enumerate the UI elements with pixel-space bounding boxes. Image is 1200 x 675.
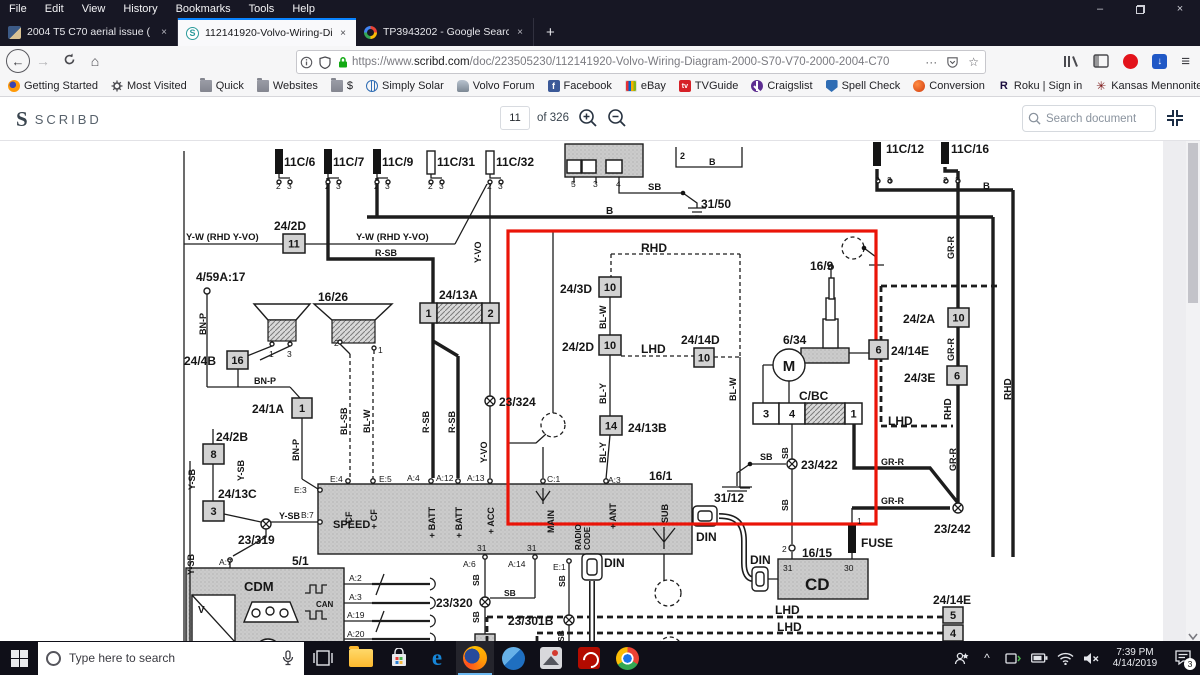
microsoft-store-button[interactable] [380,641,418,675]
tab-bar: 2004 T5 C70 aerial issue ( not t × S 112… [0,18,1200,46]
menu-help[interactable]: Help [283,3,324,15]
diagram-label: C/BC [799,389,829,403]
diagram-label: RHD [943,398,954,420]
diagram-label: FUSE [861,536,893,550]
acrobat-button[interactable] [570,641,608,675]
junction-23-301B [564,615,574,625]
diagram-label: 23/324 [499,395,536,409]
start-button[interactable] [0,641,38,675]
diagram-pin-number: 6 [875,345,881,357]
dashed-component-circle [655,580,681,606]
diagram-label: 4/59A:17 [196,270,246,284]
diagram-pin-number: 16 [231,355,243,367]
diagram-label: 11C/32 [496,155,534,169]
diagram-label: 11C/16 [951,142,989,156]
diagram-label: B [709,157,716,167]
diagram-label: 31/50 [701,197,731,211]
menu-history[interactable]: History [114,3,166,15]
desktop: File Edit View History Bookmarks Tools H… [0,0,1200,675]
diagram-label: BL-Y [598,442,608,463]
forward-button[interactable]: → [30,53,56,69]
folder-icon [331,80,343,92]
bookmark-volvo-forum[interactable]: Volvo Forum [457,80,535,92]
diagram-label: A:3 [349,592,362,602]
diagram-label: 2 [782,544,787,554]
new-tab-button[interactable]: + [534,18,567,46]
tab-title: TP3943202 - Google Search [383,26,509,38]
back-button[interactable]: ← [6,49,30,73]
diagram-label: R-SB [447,411,457,433]
tab-scribd-active[interactable]: S 112141920-Volvo-Wiring-Diag × [178,18,356,46]
diagram-label: SB [471,574,481,586]
file-explorer-button[interactable] [342,641,380,675]
diagram-label: 16/26 [318,290,348,304]
diagram-label: 3 [955,175,960,185]
firefox-button-active[interactable] [456,641,494,675]
diagram-label: DIN [696,530,717,544]
diagram-pin-box [567,160,581,173]
diagram-label: 24/14E [933,593,971,607]
download-extension-icon[interactable]: ↓ [1152,54,1167,69]
bookmark-most-visited[interactable]: Most Visited [111,80,187,92]
diagram-label: Y-VO [473,241,483,263]
close-button[interactable]: × [1160,0,1200,18]
windows-logo-icon [11,650,28,667]
diagram-label: Y-SB [187,468,197,490]
bookmarks-toolbar: Getting Started Most Visited Quick Websi… [0,76,1200,97]
diagram-label: Y-VO [479,441,489,463]
wire-break [430,578,435,641]
document-search-input[interactable]: Search document [1022,105,1156,132]
diagram-label: + BATT [454,506,464,538]
edge-icon: e [432,645,442,671]
scrollbar-thumb[interactable] [1188,143,1198,303]
car-icon [457,80,469,92]
diagram-label: 1 [857,516,862,526]
diagram-label: E:5 [379,474,392,484]
diagram-label: E:3 [294,485,307,495]
home-button[interactable]: ⌂ [82,53,108,69]
windows-taskbar: Type here to search e [0,641,1200,675]
diagram-label: Y-SB [236,459,246,481]
diagram-label: 31 [783,563,793,573]
folder-icon [200,80,212,92]
diagram-label: 3 [385,181,390,191]
diagram-label: GR-R [881,496,904,506]
diagram-label: GR-R [881,457,904,467]
svg-text:V: V [198,605,205,616]
diagram-label: SUB [660,503,670,523]
navigation-toolbar: ← → ⌂ https://www.scribd.com/doc/2235052… [0,46,1200,77]
diagram-label: BL-W [362,409,372,433]
diagram-label: 23/301B [508,614,554,628]
tab-google-search[interactable]: TP3943202 - Google Search × [356,18,534,46]
diagram-label: 23/320 [436,596,473,610]
junction-23-242 [953,503,963,513]
volume-muted-tray-icon[interactable] [1078,641,1104,675]
wifi-tray-icon[interactable] [1052,641,1078,675]
dashed-component-circle [541,413,565,437]
bookmark-folder-dollar[interactable]: $ [331,80,353,92]
diagram-label: SB [648,182,661,193]
diagram-label: A:12 [436,473,454,483]
speaker-right [314,304,392,320]
diagram-label: GR-R [946,338,956,361]
bookmark-getting-started[interactable]: Getting Started [8,80,98,92]
diagram-label: GR-R [948,448,958,471]
menu-view[interactable]: View [73,3,115,15]
bookmark-spell-check[interactable]: Spell Check [826,80,901,92]
diagram-label: 16/1 [649,469,673,483]
diagram-label: 23/242 [934,522,971,536]
chrome-icon [616,647,639,670]
taskbar-search-input[interactable]: Type here to search [38,642,304,675]
diagram-label: LHD [888,414,913,428]
speaker-left [254,304,310,320]
facebook-icon: f [548,80,560,92]
task-view-icon [313,649,333,667]
diagram-label: Y-W (RHD Y-VO) [356,232,429,243]
diagram-label: 3 [287,181,292,191]
battery-tray-icon[interactable] [1026,641,1052,675]
scribd-logo-text: SCRIBD [35,112,102,127]
bookmark-simply-solar[interactable]: Simply Solar [366,80,444,92]
diagram-label: BN-P [254,376,276,386]
diagram-label: BL-W [598,305,608,329]
peace-icon [751,80,763,92]
diagram-label: RHD [1003,378,1014,400]
diagram-label: + ACC [486,507,496,534]
diagram-pin-number: 10 [952,313,964,325]
diagram-pin-number: 3 [763,409,769,421]
diagram-label: CAN [316,600,334,609]
diagram-pin-number: 10 [604,282,616,294]
diagram-label: 2 [487,181,492,191]
document-page[interactable]: V [0,141,1200,641]
notification-badge: 3 [1184,658,1196,670]
diagram-pin-number: 2 [487,308,493,320]
tab-title: 2004 T5 C70 aerial issue ( not t [27,26,153,38]
roku-icon: R [998,80,1010,92]
diagram-pin-box [582,160,596,173]
diagram-label: BL-W [728,377,738,401]
bookmark-facebook[interactable]: fFacebook [548,80,612,92]
diagram-label: RHD [641,241,667,255]
diagram-label: 11C/7 [333,155,365,169]
fuse-element [848,525,856,553]
diagram-label: R-SB [375,248,397,258]
diagram-label: SB [557,575,567,587]
reload-icon [63,53,76,66]
scribd-logo-glyph: S [16,107,28,132]
chrome-button[interactable] [608,641,646,675]
diagram-pin-box [606,160,622,173]
page-info-icon[interactable] [300,56,313,69]
diagram-label: 11C/6 [284,155,316,169]
diagram-label: A:19 [347,610,365,620]
diagram-label: BN-P [198,313,208,335]
diagram-label: B [606,206,613,217]
diagram-pin-number: 1 [425,308,431,320]
dashed-component-circle [842,237,864,259]
diagram-label: 24/2D [562,340,594,354]
wiring-diagram: V [0,141,1200,641]
reload-button[interactable] [56,53,82,69]
gear-icon [111,80,123,92]
url-bar[interactable]: https://www.scribd.com/doc/223505230/112… [296,50,986,74]
firefox-icon [463,646,487,670]
diagram-label: LHD [777,620,802,634]
diagram-label: A:6 [463,559,476,569]
diagram-label: 24/14E [891,344,929,358]
menu-bookmarks[interactable]: Bookmarks [167,3,240,15]
tab-close-icon[interactable]: × [338,28,348,39]
diagram-label: 2 [276,181,281,191]
diagram-label: 16/15 [802,546,832,560]
diagram-label: 24/13A [439,288,478,302]
diagram-label: Y-SB [279,511,301,521]
power-tray-icon[interactable] [1000,641,1026,675]
wire [372,584,430,639]
diagram-label: 31 [477,543,487,553]
diagram-pin-number: 4 [950,628,957,640]
window-title-bar: File Edit View History Bookmarks Tools H… [0,0,1200,18]
diagram-label: 3 [593,179,598,189]
diagram-label: 3 [887,175,892,185]
diagram-label: 2 [334,338,339,348]
app-menu-icon[interactable]: ≡ [1181,53,1190,70]
diagram-label: 5 [571,179,576,189]
diagram-label: 24/2D [274,219,306,233]
diagram-label: 16/9 [810,259,834,273]
diagram-label: SB [556,630,566,641]
burst-icon: ✳ [1095,80,1107,92]
diagram-label: DIN [750,553,771,567]
diagram-label: + CF [369,509,379,529]
image-viewer-button[interactable] [532,641,570,675]
bookmark-star-icon[interactable]: ☆ [962,55,985,69]
tracking-shield-icon[interactable] [319,56,331,69]
diagram-label: 24/2A [903,312,935,326]
edge-button[interactable]: e [418,641,456,675]
acrobat-icon [578,647,600,669]
junction-23-422 [787,459,797,469]
diagram-label: 31 [527,543,537,553]
tab-close-icon[interactable]: × [515,27,525,38]
dashed-wire [350,254,740,479]
diagram-label: A:7 [219,557,232,567]
diagram-label: A:14 [508,559,526,569]
connector-box [475,634,495,641]
bookmark-kansas-mennonite[interactable]: ✳Kansas Mennonite Reli... [1095,80,1200,92]
bookmark-craigslist[interactable]: Craigslist [751,80,812,92]
tab-title: 112141920-Volvo-Wiring-Diag [205,27,332,39]
diagram-label: 24/14D [681,333,720,347]
zoom-in-button[interactable] [578,108,598,128]
diagram-label: CDM [244,579,274,594]
diagram-label: 24/3D [560,282,592,296]
restore-icon [1136,5,1145,14]
microphone-icon[interactable] [282,650,294,666]
diagram-label: A:2 [349,573,362,583]
diagram-label: 6/34 [783,333,807,347]
diagram-label: 3 [336,181,341,191]
junction-23-324 [485,396,495,406]
folder-icon [257,80,269,92]
diagram-label: 2 [374,181,379,191]
bookmark-roku[interactable]: RRoku | Sign in [998,80,1082,92]
diagram-pin-number: 4 [789,409,796,421]
thunderbird-button[interactable] [494,641,532,675]
diagram-label: Y-W (RHD Y-VO) [186,232,259,243]
diagram-pin-number: 8 [210,449,216,461]
exit-fullscreen-button[interactable] [1166,109,1184,127]
diagram-label: CODE [583,526,592,550]
antenna-motor-housing [801,348,849,363]
menu-file[interactable]: File [0,3,36,15]
diagram-label: BL-SB [339,407,349,435]
pocket-icon[interactable] [946,56,959,69]
diagram-label: 24/1A [252,402,284,416]
diagram-pin-number: 10 [604,340,616,352]
diagram-label: LHD [775,603,800,617]
diagram-label: SB [504,588,516,598]
cortana-icon [46,651,61,666]
zoom-out-button[interactable] [607,108,627,128]
diagram-label: RADIO [574,524,583,550]
diagram-pin-box [437,303,482,323]
bookmark-ebay[interactable]: eBay [625,80,666,92]
diagram-label: E:1 [553,562,566,572]
page-total-label: of 326 [537,112,569,124]
people-tray-icon[interactable] [948,641,974,675]
diagram-label: BN-P [291,439,301,461]
system-tray: ^ 7:39 PM 4/14/2019 3 [948,641,1200,675]
action-center-button[interactable]: 3 [1166,641,1200,675]
diagram-label: MAIN [546,510,556,533]
diagram-pin-number: 6 [954,371,960,383]
menu-tools[interactable]: Tools [240,3,284,15]
search-icon [1028,112,1041,125]
tab-forum[interactable]: 2004 T5 C70 aerial issue ( not t × [0,18,178,46]
secure-lock-icon[interactable] [337,56,349,69]
diagram-label: E:4 [330,474,343,484]
bookmark-conversion[interactable]: Conversion [913,80,985,92]
diagram-label: SB [780,499,790,511]
diagram-label: 24/3E [904,371,935,385]
shield-icon [826,80,838,92]
tv-icon: tv [679,80,691,92]
diagram-pin-number: 3 [210,506,216,518]
diagram-label: SB [780,447,790,459]
search-placeholder: Search document [1046,113,1136,125]
diagram-label: B:7 [301,510,314,520]
diagram-label: 4 [616,179,621,189]
sidebar-icon[interactable] [1093,54,1109,68]
thunderbird-icon [502,647,525,670]
page-actions-icon[interactable]: ··· [919,55,943,69]
annotation-red-box [508,231,876,524]
diagram-label: 3 [498,181,503,191]
scribd-toolbar: S SCRIBD 11 of 326 Search document [0,97,1200,141]
scribd-logo[interactable]: S SCRIBD [16,107,102,132]
diagram-label: 2 [943,175,948,185]
diagram-label: 24/13C [218,487,257,501]
diagram-label: - CF [344,511,354,529]
diagram-pin-number: 5 [950,610,956,622]
restore-button[interactable] [1120,0,1160,18]
diagram-label: DIN [604,556,625,570]
clock-date: 4/14/2019 [1104,658,1166,670]
globe-icon [366,80,378,92]
diagram-label: GR-R [946,236,956,259]
diagram-label: 3 [439,181,444,191]
taskbar-clock[interactable]: 7:39 PM 4/14/2019 [1104,647,1166,670]
junction-23-320 [480,597,490,607]
diagram-label: 24/2B [216,430,248,444]
firefox-icon [8,80,20,92]
file-explorer-icon [349,649,373,667]
bookmark-folder-quick[interactable]: Quick [200,80,244,92]
diagram-label: B [983,181,990,192]
diagram-label: 1 [378,345,383,355]
adblock-extension-icon[interactable] [1123,54,1138,69]
diagram-pin-number: 1 [299,403,305,415]
diagram-label: 23/319 [238,533,275,547]
diagram-label: + ANT [608,503,618,529]
diagram-label: 5/1 [292,554,309,568]
diagram-label: 24/4B [184,354,216,368]
diagram-label: A:4 [407,473,420,483]
bookmark-folder-websites[interactable]: Websites [257,80,318,92]
tab-favicon [8,26,21,39]
junction-23-319 [261,519,271,529]
tab-close-icon[interactable]: × [159,27,169,38]
page-number-input[interactable]: 11 [500,106,530,130]
store-icon [389,648,409,668]
menu-edit[interactable]: Edit [36,3,73,15]
diagram-label: A:3 [608,475,621,485]
diagram-label: BL-Y [598,383,608,404]
diagram-label: 3 [287,349,292,359]
diagram-label: A:20 [347,629,365,639]
diagram-label: C:1 [547,474,561,484]
diagram-label: 2 [428,181,433,191]
scribd-favicon: S [186,27,199,40]
diagram-pin-number: 10 [698,353,710,365]
library-icon[interactable] [1063,54,1079,69]
diagram-pin-number: 14 [605,421,618,433]
diagram-label: 2 [680,151,685,161]
diagram-label: 11C/31 [437,155,475,169]
diagram-label: SB [760,452,773,462]
diagram-label: LHD [641,342,666,356]
diagram-label: 2 [325,181,330,191]
task-view-button[interactable] [304,641,342,675]
search-placeholder: Type here to search [69,651,274,665]
diagram-label: Y-SB [186,553,196,575]
diagram-pin-number: 11 [288,239,300,251]
diagram-label: 11C/9 [382,155,414,169]
minimize-button[interactable]: – [1080,0,1120,18]
tray-expand-chevron[interactable]: ^ [974,641,1000,675]
diagram-label: 2 [875,175,880,185]
diagram-label: + BATT [427,506,437,538]
google-favicon [364,26,377,39]
url-text: https://www.scribd.com/doc/223505230/112… [352,56,919,68]
bookmark-tvguide[interactable]: tvTVGuide [679,80,738,92]
toolbar-extensions: ↓ ≡ [1063,46,1190,76]
